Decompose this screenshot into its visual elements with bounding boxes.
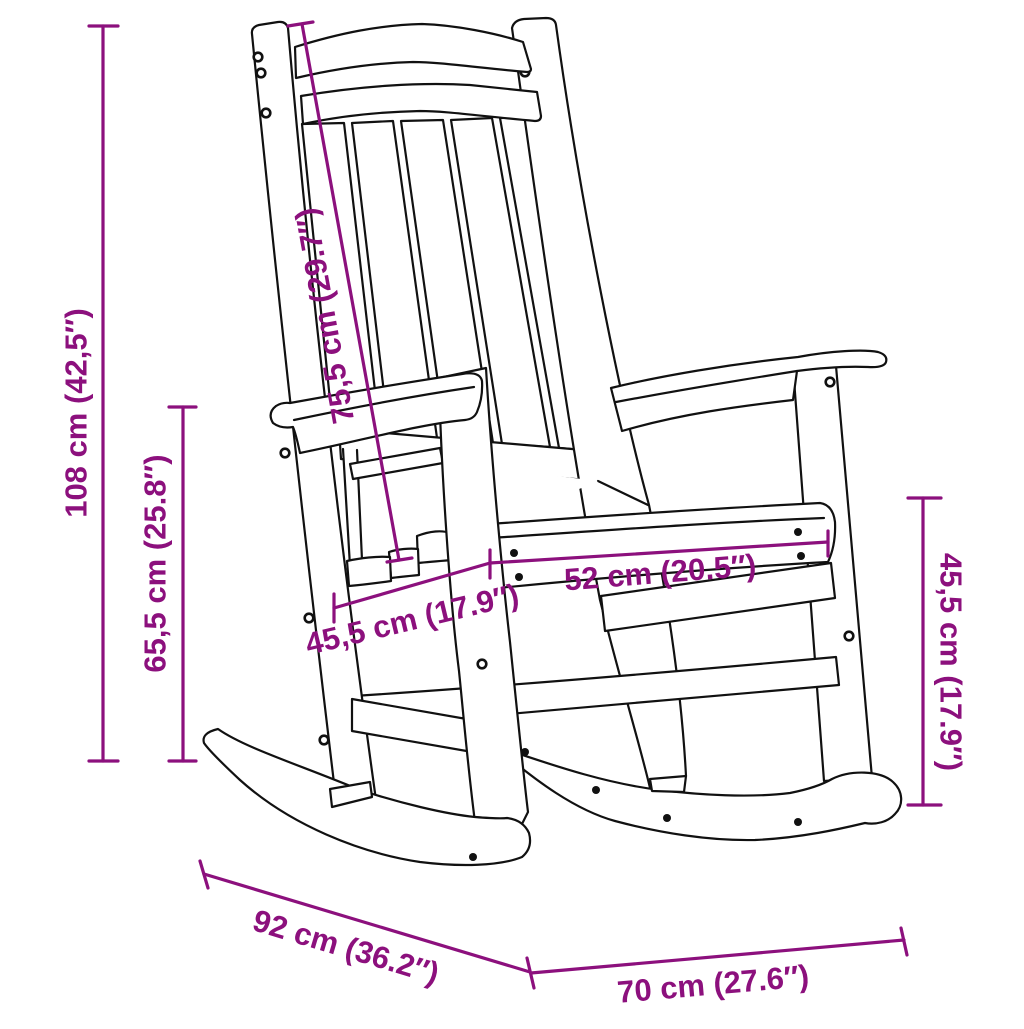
svg-text:65,5 cm (25.8″): 65,5 cm (25.8″) [138,454,173,672]
svg-text:45,5 cm (17.9″): 45,5 cm (17.9″) [934,553,969,771]
svg-text:108 cm (42,5″): 108 cm (42,5″) [59,308,94,518]
